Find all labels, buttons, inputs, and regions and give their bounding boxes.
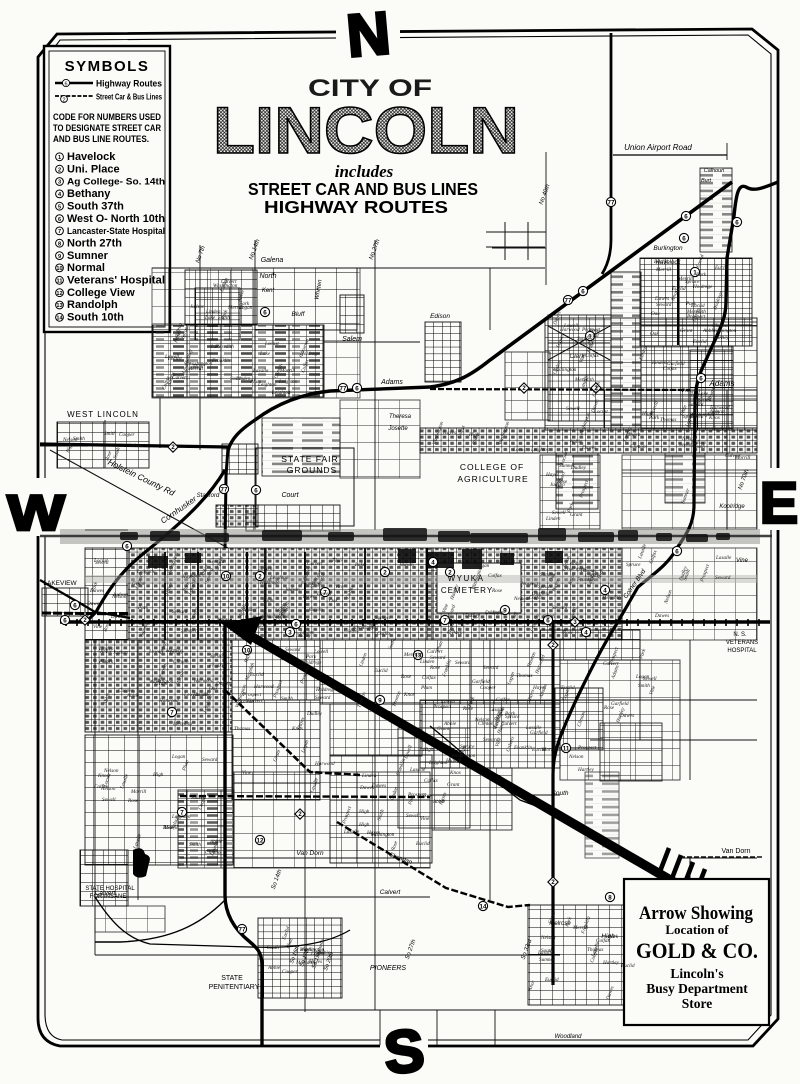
svg-text:Park: Park <box>102 659 114 665</box>
svg-text:Stanford: Stanford <box>197 493 220 499</box>
svg-text:Abbie: Abbie <box>569 439 583 445</box>
svg-text:Linden: Linden <box>205 309 221 315</box>
svg-text:Thomas: Thomas <box>516 673 532 679</box>
svg-text:Franklin: Franklin <box>211 358 231 364</box>
svg-text:Ag College- So. 14th: Ag College- So. 14th <box>67 176 165 187</box>
svg-text:Meredith: Meredith <box>686 309 706 315</box>
svg-text:Randolph: Randolph <box>67 299 118 311</box>
svg-text:6: 6 <box>58 217 61 223</box>
svg-text:Cooper: Cooper <box>282 969 299 975</box>
svg-text:Seward: Seward <box>552 605 568 611</box>
svg-text:6: 6 <box>581 288 585 295</box>
svg-text:Prospect: Prospect <box>519 581 539 587</box>
svg-text:Lake: Lake <box>259 351 271 357</box>
svg-text:Hayes: Hayes <box>442 430 456 436</box>
svg-text:Sewell: Sewell <box>643 676 657 682</box>
svg-text:Plum: Plum <box>331 558 343 564</box>
svg-text:Street Car & Bus Lines: Street Car & Bus Lines <box>96 93 162 102</box>
svg-text:Linden: Linden <box>545 516 561 522</box>
svg-text:Havelock: Havelock <box>67 151 116 163</box>
svg-text:Euclid: Euclid <box>653 259 668 265</box>
svg-text:STATE FAIR: STATE FAIR <box>281 454 338 464</box>
svg-text:4: 4 <box>603 587 607 594</box>
svg-text:Lasalle: Lasalle <box>343 829 360 835</box>
svg-text:Bethany: Bethany <box>67 188 111 200</box>
svg-text:Dawes: Dawes <box>619 713 634 719</box>
svg-text:Holdrege: Holdrege <box>315 687 336 693</box>
svg-text:Garfield: Garfield <box>472 678 490 685</box>
svg-text:Harwood: Harwood <box>193 678 214 684</box>
svg-text:Merrill: Merrill <box>163 825 180 831</box>
svg-text:Grant: Grant <box>437 726 450 732</box>
svg-text:Oak: Oak <box>329 598 338 604</box>
svg-text:CEMETERY: CEMETERY <box>441 586 493 595</box>
svg-text:Lowell: Lowell <box>148 649 164 655</box>
svg-text:Meredith: Meredith <box>214 344 234 350</box>
svg-text:Smith: Smith <box>73 436 85 442</box>
svg-text:Rose: Rose <box>603 705 615 711</box>
svg-text:Washington: Washington <box>265 614 290 620</box>
svg-text:Rose: Rose <box>562 630 574 636</box>
svg-text:Leighton: Leighton <box>530 447 550 453</box>
svg-text:Nelson: Nelson <box>568 754 584 760</box>
svg-text:Euclid: Euclid <box>373 668 388 674</box>
svg-text:Locust: Locust <box>93 558 108 564</box>
svg-text:Abbie: Abbie <box>99 649 113 655</box>
svg-text:Edison: Edison <box>430 313 450 320</box>
svg-text:Thomas: Thomas <box>580 568 596 574</box>
svg-text:Smith: Smith <box>104 431 116 437</box>
svg-text:6: 6 <box>699 375 703 382</box>
svg-text:Grant: Grant <box>570 512 583 518</box>
svg-text:Sumner: Sumner <box>375 615 392 621</box>
svg-text:Calvert: Calvert <box>247 698 263 704</box>
svg-text:Euclid: Euclid <box>692 339 707 345</box>
svg-text:2: 2 <box>62 98 65 104</box>
svg-text:6: 6 <box>263 309 267 316</box>
svg-text:1: 1 <box>58 155 61 161</box>
svg-text:High: High <box>152 772 164 778</box>
svg-text:North 27th: North 27th <box>67 237 122 249</box>
svg-text:2: 2 <box>448 569 452 576</box>
svg-text:Normal: Normal <box>67 262 105 274</box>
svg-text:Clinton: Clinton <box>630 444 646 450</box>
svg-text:Smith: Smith <box>543 614 555 620</box>
svg-text:2: 2 <box>58 167 61 173</box>
svg-text:3: 3 <box>58 180 61 186</box>
svg-text:Morrill: Morrill <box>279 368 296 374</box>
svg-text:Calvert: Calvert <box>95 890 117 897</box>
svg-text:2: 2 <box>383 569 387 576</box>
svg-text:Logan: Logan <box>238 305 253 311</box>
svg-text:14: 14 <box>56 316 63 322</box>
svg-text:77: 77 <box>608 199 615 206</box>
svg-text:77: 77 <box>221 486 228 493</box>
svg-text:11: 11 <box>563 745 570 752</box>
svg-text:Spruce: Spruce <box>210 653 225 659</box>
svg-text:Euclid: Euclid <box>544 977 559 983</box>
svg-text:10: 10 <box>56 266 62 272</box>
svg-text:Colfax: Colfax <box>488 572 503 579</box>
svg-text:Seward: Seward <box>688 402 704 408</box>
svg-text:Linden: Linden <box>257 566 273 572</box>
svg-text:Lasalle: Lasalle <box>409 767 426 773</box>
svg-text:SYMBOLS: SYMBOLS <box>65 58 150 75</box>
svg-text:Dawes: Dawes <box>581 445 596 451</box>
svg-text:Seward: Seward <box>202 757 218 763</box>
svg-text:GOLD & CO.: GOLD & CO. <box>636 938 758 963</box>
svg-text:Seward: Seward <box>315 695 331 701</box>
svg-text:West O- North 10th: West O- North 10th <box>67 213 165 225</box>
svg-text:Sewell: Sewell <box>552 510 566 516</box>
svg-text:Merrill: Merrill <box>677 276 694 282</box>
svg-text:Sumner: Sumner <box>241 607 258 613</box>
svg-text:Park: Park <box>137 605 149 611</box>
svg-text:Plum: Plum <box>249 379 261 385</box>
svg-text:HIGHWAY ROUTES: HIGHWAY ROUTES <box>264 197 448 217</box>
svg-text:High: High <box>358 822 370 828</box>
svg-text:Nelson: Nelson <box>540 935 556 941</box>
svg-text:Court: Court <box>281 492 299 499</box>
svg-text:Adams: Adams <box>380 379 403 386</box>
svg-text:Holdrege: Holdrege <box>692 284 713 290</box>
svg-text:6: 6 <box>294 621 298 628</box>
svg-text:W: W <box>7 485 65 541</box>
svg-text:Colfax: Colfax <box>496 696 511 703</box>
svg-text:77: 77 <box>340 385 347 392</box>
svg-text:High: High <box>422 747 434 753</box>
svg-text:Abbie: Abbie <box>126 693 140 699</box>
svg-text:N: N <box>344 0 393 70</box>
svg-text:6: 6 <box>355 385 359 392</box>
svg-text:Seward: Seward <box>430 655 446 661</box>
svg-text:Lasalle: Lasalle <box>715 555 732 561</box>
svg-text:Holdrege: Holdrege <box>259 580 280 586</box>
svg-text:South: South <box>552 790 569 797</box>
svg-text:Kent: Kent <box>262 288 275 294</box>
svg-text:6: 6 <box>64 82 67 88</box>
svg-text:Seward: Seward <box>656 302 672 308</box>
svg-text:Hartley: Hartley <box>299 947 317 953</box>
svg-text:Park: Park <box>305 654 317 660</box>
svg-text:PENITENTIARY: PENITENTIARY <box>209 984 260 991</box>
svg-text:High: High <box>358 809 370 815</box>
svg-text:Knox: Knox <box>403 692 416 698</box>
svg-text:Park: Park <box>695 272 707 278</box>
svg-text:Park: Park <box>648 415 660 421</box>
svg-text:5: 5 <box>58 204 61 210</box>
svg-text:Lasalle: Lasalle <box>192 692 209 698</box>
svg-text:12: 12 <box>56 291 62 297</box>
svg-text:Leighton: Leighton <box>428 760 448 766</box>
svg-text:Vine: Vine <box>242 770 252 776</box>
svg-text:6: 6 <box>684 213 688 220</box>
svg-text:Clinton: Clinton <box>712 323 728 329</box>
svg-text:CODE FOR NUMBERS USED: CODE FOR NUMBERS USED <box>53 112 161 123</box>
svg-text:Knox: Knox <box>97 773 110 779</box>
svg-text:Euclid: Euclid <box>560 685 575 691</box>
svg-text:Colfax: Colfax <box>580 340 595 347</box>
svg-text:77: 77 <box>565 297 572 304</box>
svg-text:College View: College View <box>67 287 135 299</box>
svg-text:Garfield: Garfield <box>532 590 550 597</box>
svg-text:Seward: Seward <box>455 660 471 666</box>
svg-text:Seward: Seward <box>715 575 731 581</box>
svg-text:Grant: Grant <box>447 782 460 788</box>
svg-text:Vine: Vine <box>420 816 430 822</box>
svg-text:Oak: Oak <box>650 331 659 337</box>
svg-text:South: South <box>267 945 279 951</box>
svg-text:GROUNDS: GROUNDS <box>287 465 337 475</box>
svg-text:Vine: Vine <box>736 558 749 564</box>
svg-text:13: 13 <box>56 303 62 309</box>
svg-text:N. S.: N. S. <box>733 632 747 638</box>
svg-text:9: 9 <box>58 254 61 260</box>
svg-text:AGRICULTURE: AGRICULTURE <box>457 474 528 484</box>
svg-text:Oak: Oak <box>651 311 660 317</box>
svg-text:6: 6 <box>675 548 679 555</box>
svg-text:North: North <box>259 273 276 280</box>
svg-text:7: 7 <box>170 709 174 716</box>
svg-text:Calvert: Calvert <box>380 889 402 896</box>
svg-text:6: 6 <box>73 602 77 609</box>
svg-text:Morrill: Morrill <box>130 789 147 795</box>
svg-text:Nelson: Nelson <box>111 594 127 600</box>
svg-text:Logan: Logan <box>475 563 490 569</box>
svg-text:Meredith: Meredith <box>295 960 315 966</box>
svg-text:Smith: Smith <box>638 683 650 689</box>
svg-text:Union Airport Road: Union Airport Road <box>624 143 692 152</box>
svg-text:Lancaster-State Hospital: Lancaster-State Hospital <box>67 225 165 236</box>
svg-text:TO DESIGNATE STREET CAR: TO DESIGNATE STREET CAR <box>53 123 161 134</box>
svg-text:10: 10 <box>223 573 230 580</box>
svg-text:Franklin: Franklin <box>513 745 533 751</box>
svg-text:Rose: Rose <box>400 674 412 680</box>
svg-text:Hayes: Hayes <box>545 472 559 478</box>
svg-text:Salem: Salem <box>342 336 362 343</box>
svg-text:Dawes: Dawes <box>302 594 317 600</box>
svg-text:Locust: Locust <box>512 447 527 453</box>
svg-text:Dawes: Dawes <box>654 296 669 302</box>
svg-text:Van Dorn: Van Dorn <box>296 850 324 857</box>
svg-text:Euclid: Euclid <box>671 286 686 292</box>
svg-text:Grant: Grant <box>680 328 693 334</box>
svg-text:6: 6 <box>125 543 129 550</box>
svg-text:4: 4 <box>584 629 588 636</box>
svg-text:8: 8 <box>608 894 612 901</box>
svg-text:Harwood: Harwood <box>314 761 335 767</box>
svg-text:Garfield: Garfield <box>712 425 730 432</box>
svg-text:Dawes: Dawes <box>654 613 669 619</box>
svg-text:Josette: Josette <box>387 426 408 432</box>
svg-text:Dudley: Dudley <box>215 681 232 687</box>
svg-text:Rose: Rose <box>588 328 600 334</box>
svg-text:14: 14 <box>480 903 487 910</box>
svg-text:Holdrege: Holdrege <box>301 660 322 666</box>
svg-text:Merrill: Merrill <box>655 267 672 273</box>
svg-text:Cooper: Cooper <box>480 685 497 691</box>
svg-text:HOSPITAL: HOSPITAL <box>727 648 757 654</box>
svg-text:12: 12 <box>257 837 264 844</box>
svg-text:Meredith: Meredith <box>403 652 423 658</box>
svg-text:Dawes: Dawes <box>110 614 125 620</box>
svg-text:Colfax: Colfax <box>345 619 360 626</box>
svg-text:Galena: Galena <box>261 257 284 264</box>
svg-text:Seward: Seward <box>679 442 695 448</box>
svg-text:77: 77 <box>239 926 246 933</box>
svg-text:Highway Routes: Highway Routes <box>96 79 162 90</box>
svg-text:Veterans' Hospital: Veterans' Hospital <box>67 275 165 287</box>
svg-text:South: South <box>230 376 242 382</box>
svg-text:3: 3 <box>288 629 292 636</box>
svg-text:9: 9 <box>378 697 382 704</box>
svg-text:Judson: Judson <box>190 304 205 310</box>
svg-text:Busy Department: Busy Department <box>646 981 748 996</box>
svg-text:STREET CAR AND BUS LINES: STREET CAR AND BUS LINES <box>248 179 478 199</box>
svg-text:Colfax: Colfax <box>422 674 437 681</box>
svg-text:Harwood: Harwood <box>559 327 580 333</box>
svg-text:Rose: Rose <box>127 798 139 804</box>
svg-text:Rose: Rose <box>491 588 503 594</box>
svg-text:VETERANS: VETERANS <box>726 640 758 646</box>
svg-text:Colfax: Colfax <box>440 556 455 563</box>
svg-text:Judson: Judson <box>128 443 143 449</box>
svg-text:Dawes: Dawes <box>89 588 104 594</box>
svg-text:Dudley: Dudley <box>306 711 323 717</box>
svg-text:Judson: Judson <box>285 587 300 593</box>
svg-text:Lasalle: Lasalle <box>252 368 269 374</box>
svg-text:STATE: STATE <box>221 975 243 982</box>
svg-text:AND BUS LINE ROUTES.: AND BUS LINE ROUTES. <box>53 134 149 145</box>
svg-text:Sewell: Sewell <box>102 797 116 803</box>
svg-text:Washington: Washington <box>149 679 174 685</box>
svg-text:Lake: Lake <box>408 619 420 625</box>
svg-text:LINCOLN: LINCOLN <box>213 93 519 167</box>
svg-text:Lake: Lake <box>354 562 366 568</box>
svg-text:Plum: Plum <box>420 685 432 691</box>
svg-text:Meredith: Meredith <box>601 595 621 601</box>
svg-text:Seward: Seward <box>483 665 499 671</box>
svg-text:PIONEERS: PIONEERS <box>370 965 407 972</box>
svg-text:7: 7 <box>58 229 61 235</box>
svg-text:Garfield: Garfield <box>667 360 685 367</box>
svg-text:COLLEGE OF: COLLEGE OF <box>460 462 524 472</box>
svg-text:Lowell: Lowell <box>704 410 720 416</box>
svg-text:4: 4 <box>431 559 435 566</box>
svg-text:Franklin: Franklin <box>576 577 596 583</box>
svg-text:Lasalle: Lasalle <box>218 618 235 624</box>
svg-text:Hayes: Hayes <box>181 574 195 580</box>
svg-text:Cooper: Cooper <box>344 628 361 634</box>
svg-text:Washington: Washington <box>451 753 476 759</box>
svg-text:Judson: Judson <box>399 562 414 568</box>
svg-text:Hartley: Hartley <box>602 960 620 966</box>
svg-text:Rose: Rose <box>421 793 433 799</box>
svg-text:WEST LINCOLN: WEST LINCOLN <box>67 410 139 419</box>
svg-text:Grant: Grant <box>194 619 207 625</box>
svg-text:Sewell: Sewell <box>566 406 580 412</box>
svg-text:Abbie: Abbie <box>569 561 583 567</box>
svg-text:Bluff: Bluff <box>291 311 305 318</box>
svg-text:Dawes: Dawes <box>359 785 374 791</box>
svg-text:Van Dorn: Van Dorn <box>721 848 750 855</box>
svg-text:Leighton: Leighton <box>136 569 156 575</box>
svg-text:6: 6 <box>63 617 67 624</box>
svg-text:South 37th: South 37th <box>67 200 124 212</box>
svg-text:Smith: Smith <box>189 842 201 848</box>
svg-text:South: South <box>541 948 553 954</box>
svg-text:Dudley: Dudley <box>484 610 501 616</box>
svg-text:Store: Store <box>682 996 713 1011</box>
svg-text:Calvert: Calvert <box>307 561 323 567</box>
svg-text:Locust: Locust <box>264 341 279 347</box>
svg-text:Garfield: Garfield <box>530 729 548 736</box>
svg-text:Colfax: Colfax <box>585 352 600 359</box>
svg-text:Meredith: Meredith <box>172 721 192 727</box>
svg-text:Park: Park <box>685 301 697 307</box>
svg-text:South 10th: South 10th <box>67 312 124 324</box>
svg-text:Prospect: Prospect <box>432 704 452 710</box>
svg-text:Calvert: Calvert <box>501 721 517 727</box>
svg-text:Spruce: Spruce <box>184 557 199 563</box>
svg-text:Cooper: Cooper <box>119 432 136 438</box>
svg-text:Sumner: Sumner <box>181 628 198 634</box>
svg-text:Linden: Linden <box>299 630 315 636</box>
svg-text:E: E <box>760 471 799 536</box>
svg-text:Koolridge: Koolridge <box>719 504 745 510</box>
svg-text:Hartley: Hartley <box>712 335 730 341</box>
svg-text:11: 11 <box>57 279 63 285</box>
svg-text:Logan: Logan <box>171 754 186 760</box>
svg-text:Seward: Seward <box>172 609 188 615</box>
svg-text:Harwood: Harwood <box>253 684 274 690</box>
svg-text:Sumner: Sumner <box>67 250 109 262</box>
svg-text:Euclid: Euclid <box>714 265 729 271</box>
svg-text:Judson: Judson <box>308 607 323 613</box>
svg-text:Prospect: Prospect <box>577 745 597 751</box>
svg-text:Hartley: Hartley <box>577 767 595 773</box>
svg-text:Euclid: Euclid <box>620 963 635 969</box>
svg-text:Vine: Vine <box>93 624 103 630</box>
svg-text:Location of: Location of <box>665 922 729 937</box>
svg-text:Sumner: Sumner <box>539 957 556 963</box>
svg-text:Nelson: Nelson <box>513 596 529 602</box>
svg-text:Harwood: Harwood <box>158 698 179 704</box>
svg-text:Colfax: Colfax <box>94 783 109 790</box>
svg-text:Lincoln's: Lincoln's <box>670 966 723 981</box>
svg-text:Spruce: Spruce <box>460 744 475 750</box>
svg-text:Burt: Burt <box>701 178 712 184</box>
svg-text:Theresa: Theresa <box>389 414 412 420</box>
svg-text:Spruce: Spruce <box>538 584 553 590</box>
svg-text:Euclid: Euclid <box>531 747 546 753</box>
svg-text:Abbie: Abbie <box>317 950 331 956</box>
svg-text:8: 8 <box>58 241 61 247</box>
svg-text:Hartley: Hartley <box>165 648 183 654</box>
svg-text:Leighton: Leighton <box>278 379 298 385</box>
svg-text:Colfax: Colfax <box>377 630 392 637</box>
svg-text:Arrow Showing: Arrow Showing <box>639 903 753 924</box>
svg-text:Knox: Knox <box>449 770 462 776</box>
svg-text:Lake: Lake <box>204 315 216 321</box>
svg-text:Vine: Vine <box>335 584 345 590</box>
svg-text:Burlington: Burlington <box>653 245 683 252</box>
svg-text:Seward: Seward <box>285 647 301 653</box>
svg-text:Euclid: Euclid <box>415 841 430 847</box>
svg-text:High: High <box>192 364 204 370</box>
svg-text:Sewell: Sewell <box>406 813 420 819</box>
svg-text:High: High <box>262 598 274 604</box>
